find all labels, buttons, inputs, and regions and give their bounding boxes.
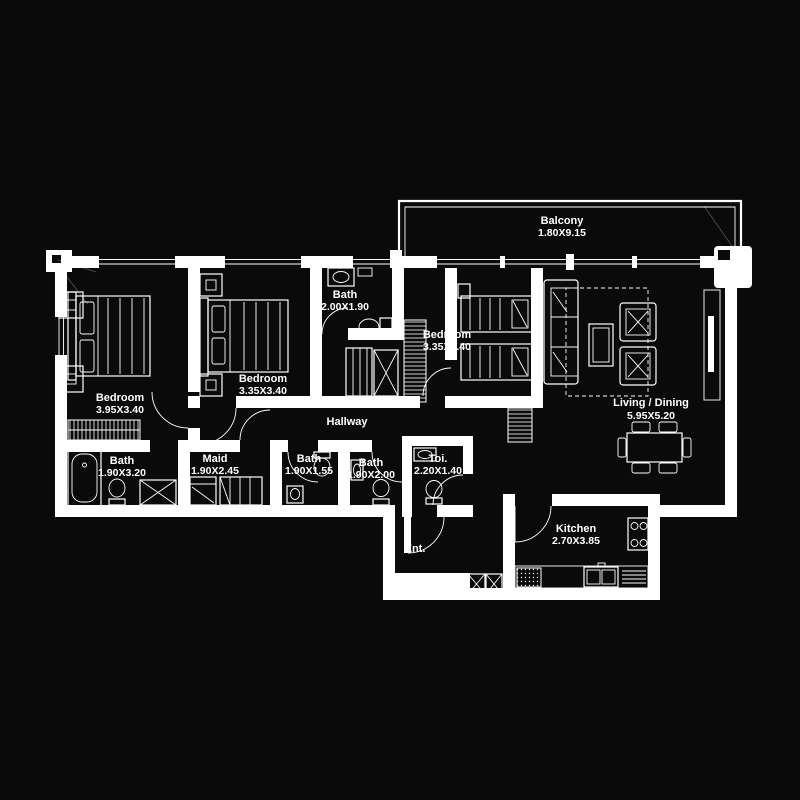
room-dims-living-dining: 5.95X5.20 — [627, 410, 675, 422]
room-label-bath-left: Bath — [110, 455, 135, 467]
room-dims-kitchen: 2.70X3.85 — [552, 535, 600, 547]
room-label-balcony: Balcony — [541, 215, 585, 227]
room-dims-bath-left: 1.90X3.20 — [98, 467, 146, 479]
room-label-bath-middle: Bath — [297, 453, 322, 465]
room-dims-bedroom-left: 3.95X3.40 — [96, 404, 144, 416]
room-dims-bedroom-right: 3.35X3.40 — [423, 341, 471, 353]
floor-plan: Balcony 1.80X9.15 Bedroom 3.95X3.40 Bedr… — [0, 0, 800, 800]
room-dims-maid: 1.90X2.45 — [191, 465, 239, 477]
room-label-bath-top: Bath — [333, 289, 358, 301]
room-dims-bath-top: 2.00X1.90 — [321, 301, 369, 313]
room-dims-bath-right: 1.90X2.00 — [347, 469, 395, 481]
room-dims-balcony: 1.80X9.15 — [538, 227, 586, 239]
room-label-toilet: Toi. — [429, 453, 448, 465]
room-dims-bath-middle: 1.90X1.55 — [285, 465, 333, 477]
room-label-entrance: Ent. — [405, 543, 426, 555]
room-label-kitchen: Kitchen — [556, 523, 597, 535]
room-dims-bedroom-middle: 3.35X3.40 — [239, 385, 287, 397]
room-label-bedroom-right: Bedroom — [423, 329, 472, 341]
room-label-bedroom-left: Bedroom — [96, 392, 145, 404]
room-label-bath-right: Bath — [359, 457, 384, 469]
room-label-maid: Maid — [202, 453, 227, 465]
room-label-bedroom-middle: Bedroom — [239, 373, 288, 385]
wardrobe-icon — [68, 420, 140, 440]
room-label-hallway: Hallway — [327, 416, 369, 428]
room-dims-toilet: 2.20X1.40 — [414, 465, 462, 477]
room-label-living-dining: Living / Dining — [613, 397, 689, 409]
